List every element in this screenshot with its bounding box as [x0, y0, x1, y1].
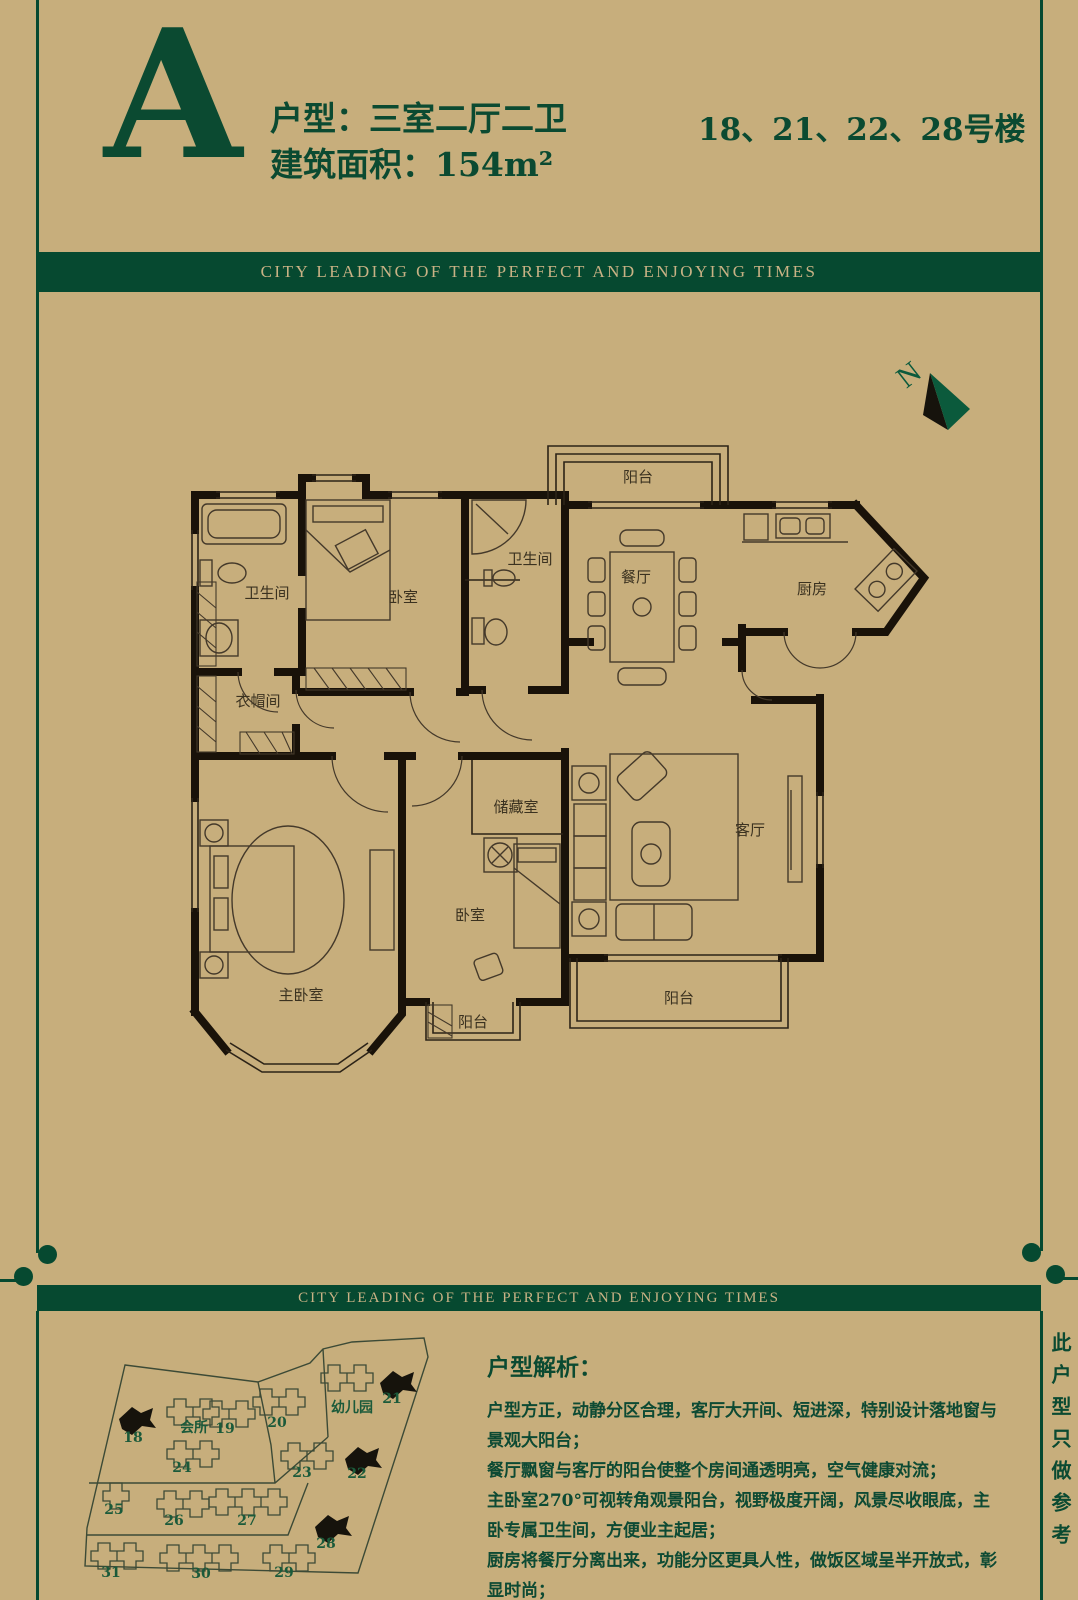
site-building: [321, 1365, 373, 1391]
site-building-label: 31: [101, 1565, 120, 1581]
analysis-line: 厨房将餐厅分离出来，功能分区更具人性，做饭区域呈半开放式，彰显时尚；: [487, 1546, 1003, 1600]
compass-n-label: N: [890, 355, 927, 394]
wardrobe-hatch: [197, 582, 452, 1038]
corner-tick: [1060, 1277, 1078, 1280]
unit-type-letter: A: [104, 6, 242, 184]
banner-bottom: CITY LEADING OF THE PERFECT AND ENJOYING…: [37, 1285, 1041, 1311]
floor-plan: 阳台卫生间卧室卫生间餐厅厨房衣帽间储藏室客厅主卧室卧室阳台阳台: [180, 430, 970, 1100]
room-label: 卫生间: [244, 584, 289, 602]
building-numbers-text: 18、21、22、28号楼: [698, 104, 1026, 149]
analysis-line: 户型方正，动静分区合理，客厅大开间、短进深，特别设计落地窗与景观大阳台；: [487, 1396, 1003, 1456]
unit-area-text: 建筑面积：154m²: [270, 138, 553, 186]
room-label: 阳台: [623, 468, 653, 486]
analysis-block: 户型解析： 户型方正，动静分区合理，客厅大开间、短进深，特别设计落地窗与景观大阳…: [487, 1348, 1003, 1600]
room-label: 主卧室: [278, 986, 323, 1004]
room-label: 厨房: [797, 580, 827, 598]
site-building-label: 22: [347, 1466, 366, 1482]
site-building-label: 24: [172, 1460, 192, 1476]
site-building-label: 21: [382, 1391, 401, 1407]
analysis-title: 户型解析：: [487, 1348, 1003, 1382]
right-border-line-lower: [1040, 1311, 1043, 1600]
site-building-label: 19: [215, 1421, 234, 1437]
site-building-label: 18: [123, 1430, 142, 1446]
unit-type-text: 户型：三室二厅二卫: [270, 92, 567, 140]
room-label: 客厅: [735, 821, 765, 839]
site-building-label: 27: [237, 1513, 256, 1529]
corner-dot: [1022, 1243, 1041, 1262]
room-labels: 阳台卫生间卧室卫生间餐厅厨房衣帽间储藏室客厅主卧室卧室阳台阳台: [235, 468, 827, 1031]
site-building-label: 幼儿园: [331, 1399, 373, 1416]
site-building-label: 23: [292, 1465, 311, 1481]
site-building: [209, 1489, 287, 1515]
site-building-label: 30: [191, 1566, 211, 1582]
room-label: 餐厅: [621, 568, 651, 586]
corner-dot: [38, 1245, 57, 1264]
corner-dot: [14, 1267, 33, 1286]
site-building-label: 29: [274, 1565, 293, 1581]
site-building-label: 28: [316, 1536, 335, 1552]
room-label: 阳台: [458, 1013, 488, 1031]
room-label: 衣帽间: [235, 692, 280, 710]
plan-doors: [238, 632, 856, 812]
plan-walls: [195, 478, 924, 1050]
floorplan-poster: A 户型：三室二厅二卫 建筑面积：154m² 18、21、22、28号楼 CIT…: [0, 0, 1078, 1600]
room-label: 阳台: [664, 989, 694, 1007]
site-building-label: 25: [104, 1502, 123, 1518]
site-building-label: 会所: [180, 1419, 208, 1436]
room-label: 卧室: [455, 906, 485, 924]
side-note: 此户型只做参考: [1046, 1332, 1075, 1556]
site-building-label: 20: [267, 1415, 287, 1431]
banner-top: CITY LEADING OF THE PERFECT AND ENJOYING…: [37, 252, 1041, 292]
right-border-line: [1040, 0, 1043, 1251]
room-label: 储藏室: [493, 798, 538, 816]
analysis-line: 主卧室270°可视转角观景阳台，视野极度开阔，风景尽收眼底，主卧专属卫生间，方便…: [487, 1486, 1003, 1546]
plan-furniture: [200, 500, 917, 981]
left-border-line-lower: [36, 1311, 39, 1600]
corner-tick: [0, 1279, 18, 1282]
corner-dot: [1046, 1265, 1065, 1284]
room-label: 卫生间: [507, 550, 552, 568]
left-border-line: [36, 0, 39, 1253]
room-label: 卧室: [388, 588, 418, 606]
site-building-label: 26: [164, 1513, 183, 1529]
site-map: 18会所1920幼儿园2124232225262728313029: [75, 1325, 455, 1590]
analysis-line: 餐厅飘窗与客厅的阳台使整个房间通透明亮，空气健康对流；: [487, 1456, 1003, 1486]
